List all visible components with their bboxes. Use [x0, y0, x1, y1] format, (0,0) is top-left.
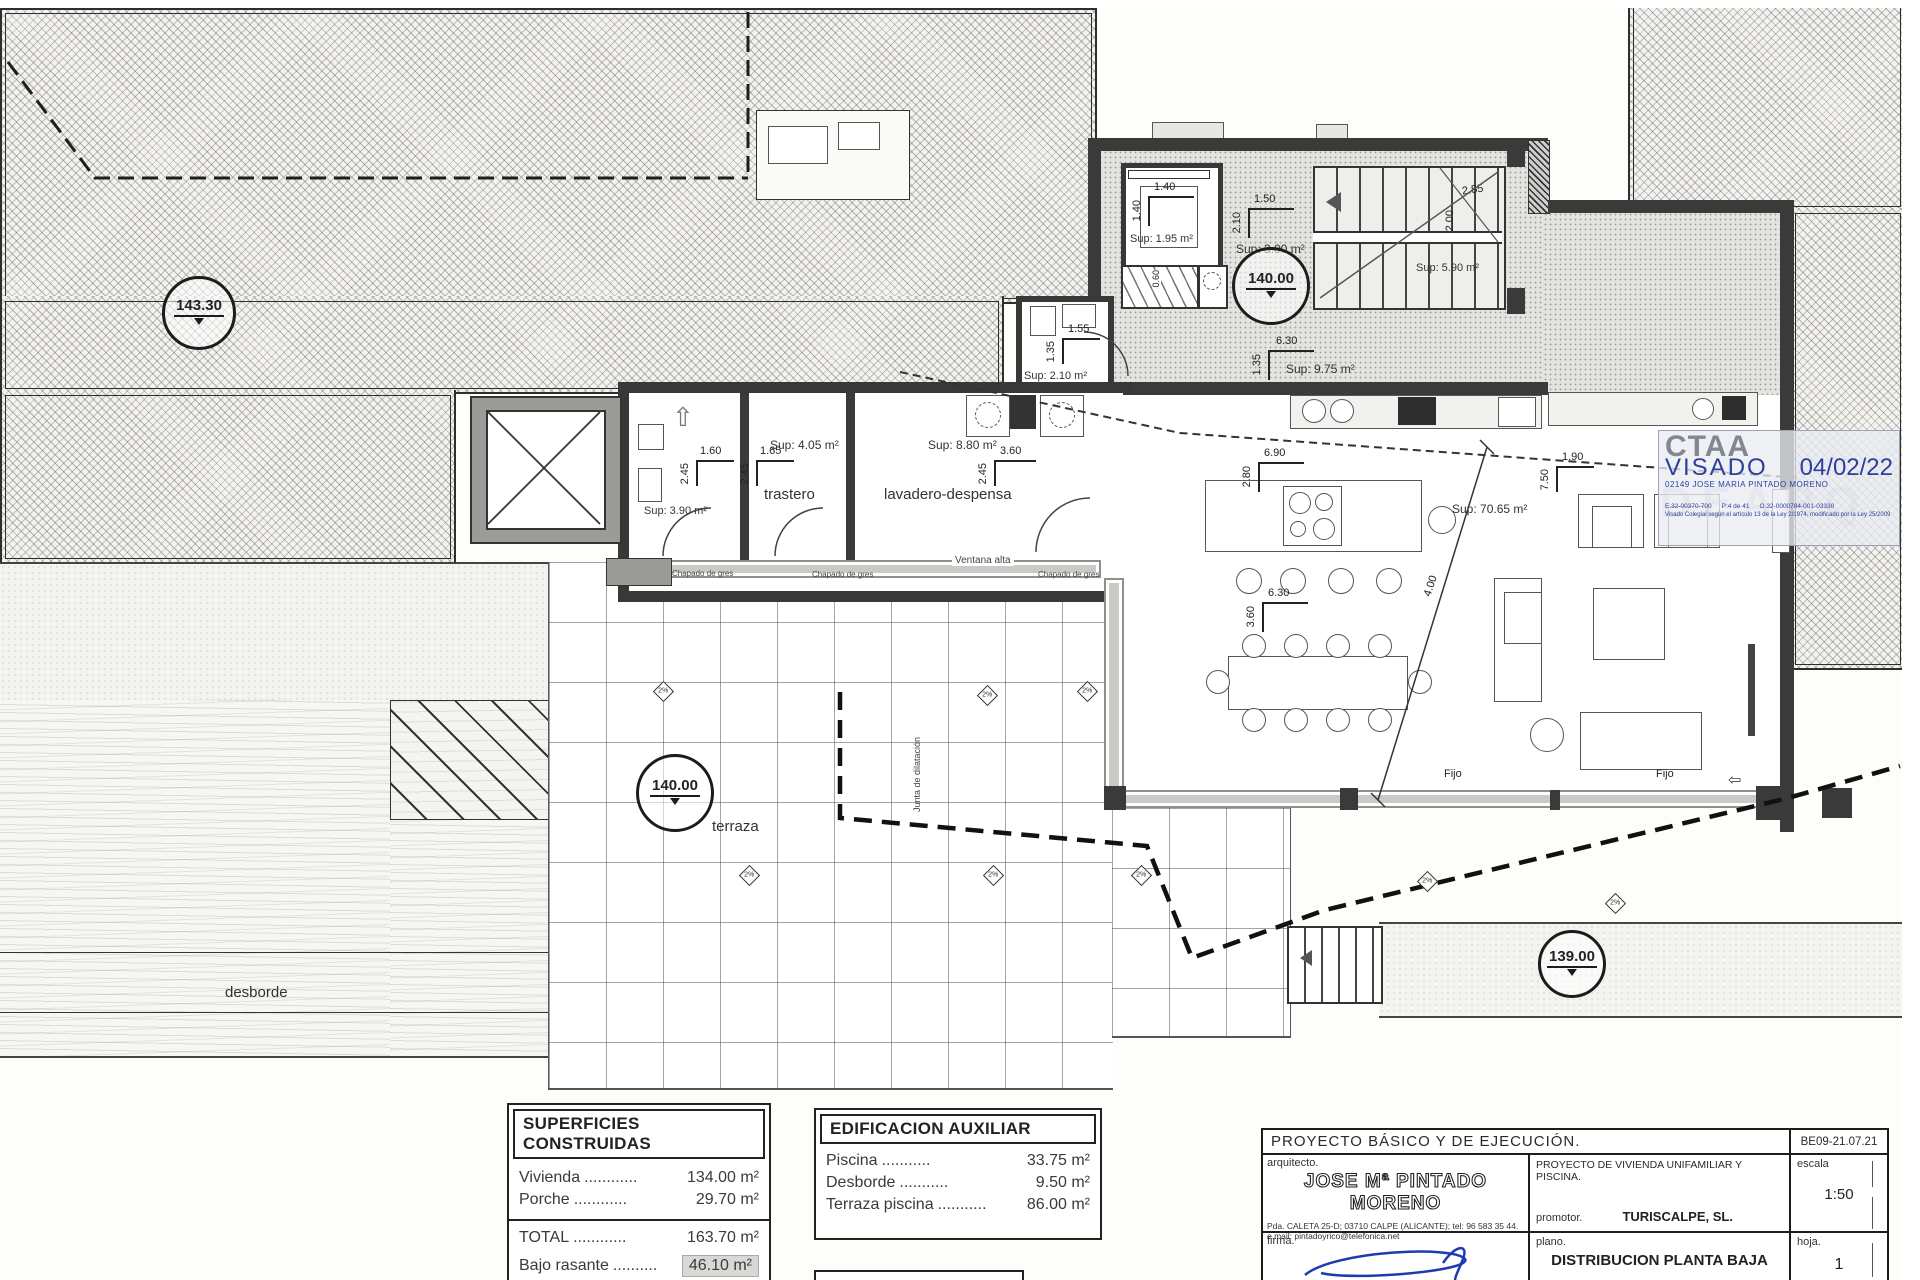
dim-tick: [994, 460, 1036, 486]
dim-tick: [1148, 196, 1194, 226]
project-title: PROYECTO DE VIVIENDA UNIFAMILIAR Y PISCI…: [1536, 1159, 1783, 1183]
chair: [1206, 670, 1230, 694]
terrain-hatch-left-low: [0, 390, 456, 564]
promotor-name: TURISCALPE, SL.: [1622, 1209, 1733, 1224]
window-band-left: [1104, 578, 1124, 792]
chapado-label: Chapado de gres: [1038, 570, 1099, 579]
laundry-sink: [1010, 395, 1036, 429]
room-label: lavadero-despensa: [884, 486, 1012, 503]
arquitecto-address: Pda. CALETA 25-D; 03710 CALPE (ALICANTE)…: [1267, 1221, 1524, 1231]
superficies-table: SUPERFICIES CONSTRUIDAS Vivienda .......…: [507, 1103, 771, 1280]
kitchen-sink: [1302, 399, 1326, 423]
dim: 2.80: [1241, 466, 1253, 487]
chair: [1284, 634, 1308, 658]
table-row: Desborde ........... 9.50 m²: [816, 1172, 1100, 1194]
stamp-visado: VISADO: [1665, 454, 1768, 482]
dim: 6.90: [1264, 447, 1285, 459]
stamp-legal: Visado Colegial según el artículo 13 de …: [1665, 512, 1893, 518]
sheet-margin: [0, 0, 1920, 8]
area-label: Sup: 3.90 m²: [644, 505, 707, 517]
dim: 2.45: [739, 463, 751, 484]
highlighted-value: 46.10 m²: [682, 1255, 759, 1277]
area-label: Sup: 2.10 m²: [1024, 370, 1087, 382]
area-label: Sup: 9.75 m²: [1286, 362, 1355, 376]
edificacion-title: EDIFICACION AUXILIAR: [820, 1114, 1096, 1144]
room-label: trastero: [764, 486, 815, 503]
visado-stamp: CTAA VISADO 04/02/22 02149 JOSE MARIA PI…: [1658, 430, 1900, 546]
gravel-band: [0, 562, 548, 703]
partial-table: [814, 1270, 1024, 1280]
side-table: [1530, 718, 1564, 752]
chair: [1242, 708, 1266, 732]
area-label: Sup: 4.05 m²: [770, 438, 839, 452]
table-row: Vivienda ............ 134.00 m²: [509, 1167, 769, 1189]
dim-tick: [1556, 466, 1594, 492]
table-row: Terraza piscina ........... 86.00 m²: [816, 1194, 1100, 1216]
armchair-cushion: [1592, 506, 1632, 548]
edificacion-table: EDIFICACION AUXILIAR Piscina ...........…: [814, 1108, 1102, 1240]
oven: [1398, 397, 1436, 425]
stairs-rail: [1313, 231, 1502, 244]
dim-tick: [1062, 338, 1100, 364]
chair: [1284, 708, 1308, 732]
sofa-2: [1580, 712, 1702, 770]
table-row: Piscina ........... 33.75 m²: [816, 1150, 1100, 1172]
terrain-hatch-topleft: [0, 8, 1097, 304]
dim: 6.30: [1276, 335, 1297, 347]
dim: 2.45: [679, 463, 691, 484]
table-row: Porche ............ 29.70 m²: [509, 1189, 769, 1211]
sofa-cushion: [1504, 592, 1541, 644]
pillar: [1507, 288, 1525, 314]
window-band-bottom: [1112, 790, 1792, 808]
wall: [1112, 382, 1548, 395]
dim: 3.60: [1000, 445, 1021, 457]
elevation-marker: 140.00: [636, 754, 714, 832]
dim-tick: [1248, 208, 1294, 238]
roof-vent: [838, 122, 880, 150]
stamp-ref: E.32-00370-700: [1665, 503, 1712, 510]
promotor-label: promotor.: [1536, 1212, 1582, 1224]
dim: 2.45: [977, 463, 989, 484]
exterior-pillar: [1822, 788, 1852, 818]
sink-bowl: [1203, 272, 1221, 290]
dim: 3.60: [1245, 606, 1257, 627]
roof-vent: [768, 126, 828, 164]
area-label: Sup: 1.95 m²: [1130, 233, 1193, 245]
terrain-hatch-left-mid: [0, 296, 1004, 394]
wall: [1088, 138, 1548, 151]
dim-tick: [756, 460, 794, 486]
hoja-value: 1: [1797, 1256, 1881, 1274]
signature: [1293, 1241, 1513, 1280]
project-header: PROYECTO BÁSICO Y DE EJECUCIÓN.: [1271, 1133, 1580, 1150]
mullion: [1550, 790, 1560, 810]
dim-tick: [1258, 462, 1304, 492]
chair: [1326, 708, 1350, 732]
drawing-code: BE09-21.07.21: [1801, 1136, 1878, 1148]
stamp-ref: O.32-0000784-001-03330: [1759, 503, 1834, 510]
wall: [1548, 200, 1794, 213]
stairs-arrow: [1316, 192, 1341, 212]
closet-dim: 0.60: [1152, 270, 1161, 288]
mullion: [1340, 788, 1358, 810]
wall: [1088, 138, 1101, 300]
dining-table: [1228, 656, 1408, 710]
chapado-label: Chapado de gres: [672, 569, 733, 578]
burner: [1290, 521, 1306, 537]
stool: [1328, 568, 1354, 594]
coffee-table: [1593, 588, 1665, 660]
desborde-line: [0, 952, 548, 953]
slope-marker: 2%: [1605, 893, 1626, 914]
chair: [1408, 670, 1432, 694]
slide-arrow-icon: ⇦: [1728, 770, 1741, 790]
wc: [1030, 306, 1056, 336]
dim: 1.40: [1131, 200, 1143, 221]
washer-drum: [975, 402, 1001, 428]
escala-label: escala: [1797, 1158, 1881, 1170]
title-block: PROYECTO BÁSICO Y DE EJECUCIÓN. BE09-21.…: [1261, 1128, 1889, 1280]
stairs-down-arrow: [1292, 950, 1312, 966]
tv-panel: [1748, 644, 1755, 736]
basin: [638, 424, 664, 450]
ventana-alta-label: Ventana alta: [952, 555, 1014, 566]
chapado-label: Chapado de gres: [812, 570, 873, 579]
area-label: Sup: 5.90 m²: [1416, 262, 1479, 274]
arquitecto-name: JOSE Mª PINTADO MORENO: [1267, 1171, 1524, 1215]
chair: [1242, 634, 1266, 658]
burner: [1313, 518, 1335, 540]
chair: [1326, 634, 1350, 658]
kitchen-sink: [1330, 399, 1354, 423]
plano-value: DISTRIBUCION PLANTA BAJA: [1536, 1252, 1783, 1269]
wall-insulated: [1528, 140, 1550, 214]
area-label: Sup: 70.65 m²: [1452, 502, 1527, 516]
burner: [1315, 493, 1333, 511]
dim: 1.90: [1562, 451, 1583, 463]
terrace-tiles: [548, 562, 1113, 1090]
escala-value: 1:50: [1797, 1186, 1881, 1203]
elevation-marker: 139.00: [1538, 930, 1606, 998]
hoja-label: hoja.: [1797, 1236, 1881, 1248]
wc: [638, 468, 662, 502]
dim-tick: [1262, 602, 1308, 632]
chair: [1368, 708, 1392, 732]
table-row: Bajo rasante .......... 46.10 m²: [509, 1253, 769, 1279]
dim: 7.50: [1539, 469, 1551, 490]
dryer-drum: [1049, 402, 1075, 428]
terraza-label: terraza: [712, 818, 759, 835]
terrain-hatch-topright: [1628, 0, 1906, 212]
up-arrow-icon: ⇧: [672, 402, 694, 433]
sheet-margin: [1902, 0, 1920, 1280]
porch-floor: [1543, 212, 1790, 392]
outdoor-sink: [1692, 398, 1714, 420]
dim: 1.55: [1068, 323, 1089, 335]
dim: 2.00: [1444, 210, 1456, 231]
fridge: [1498, 397, 1536, 427]
desborde-line: [0, 1012, 548, 1013]
dim: 1.60: [700, 445, 721, 457]
table-row: TOTAL ............ 163.70 m²: [509, 1227, 769, 1249]
area-label: Sup: 8.80 m²: [928, 438, 997, 452]
slope-marker: 2%: [1417, 871, 1438, 892]
dim: 1.35: [1045, 341, 1057, 362]
fijo-label: Fijo: [1656, 768, 1674, 780]
partition: [846, 393, 855, 565]
arquitecto-label: arquitecto.: [1267, 1157, 1524, 1169]
elevator-rail: [1128, 170, 1210, 179]
junta-dilatacion-label: Junta de dilatación: [912, 722, 922, 812]
wall-stub: [606, 558, 672, 586]
stool: [1376, 568, 1402, 594]
dim: 6.30: [1268, 587, 1289, 599]
stamp-ref: P:4 de 41: [1722, 503, 1750, 510]
floor-plan-sheet: desborde terraza Junta de dilatación 2% …: [0, 0, 1920, 1280]
gravel-path: [1379, 922, 1902, 1018]
bbq: [1722, 396, 1746, 420]
stool: [1236, 568, 1262, 594]
dim-tick: [696, 460, 734, 486]
elevation-marker: 143.30: [162, 276, 236, 350]
skylight: [486, 410, 606, 530]
elevation-marker: 140.00: [1232, 247, 1310, 325]
burner: [1289, 492, 1311, 514]
stamp-date: 04/02/22: [1800, 454, 1893, 482]
pool-water: [0, 700, 390, 1058]
pillar: [1507, 143, 1525, 167]
superficies-title: SUPERFICIES CONSTRUIDAS: [513, 1109, 765, 1159]
dim: 2.10: [1231, 212, 1243, 233]
terrace-tiles-lower: [1112, 808, 1291, 1038]
dim: 1.40: [1154, 181, 1175, 193]
desborde-label: desborde: [225, 984, 288, 1001]
corner-post: [1104, 786, 1126, 810]
pool-steps: [390, 700, 550, 820]
chair: [1368, 634, 1392, 658]
fijo-label: Fijo: [1444, 768, 1462, 780]
plano-label: plano.: [1536, 1236, 1783, 1248]
pool-water: [390, 818, 548, 1058]
corner-post: [1756, 786, 1794, 820]
dim: 1.50: [1254, 193, 1275, 205]
dim: 1.35: [1251, 354, 1263, 375]
